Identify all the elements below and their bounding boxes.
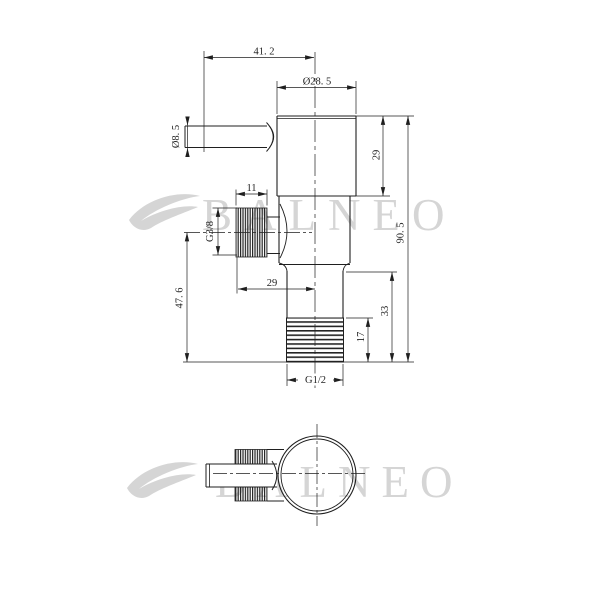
dim-label: Ø8. 5 <box>171 125 182 148</box>
dim-cap-height: 29 <box>356 116 414 196</box>
dim-label: 41. 2 <box>254 47 275 58</box>
dim-label: 47. 6 <box>175 288 186 309</box>
handle-lever <box>185 123 274 152</box>
dim-lower-section-height: 33 <box>346 272 397 362</box>
dim-side-port-offset: 29 <box>237 258 315 294</box>
side-thread-hatch <box>236 208 267 257</box>
bottom-thread-port <box>287 318 344 362</box>
dim-bottom-thread-length: 17 <box>346 318 373 362</box>
dim-label: G3/8 <box>205 221 216 242</box>
dim-label: 11 <box>246 183 256 194</box>
valve-technical-drawing: BALNEO BALNEO <box>0 0 600 600</box>
dim-body-diameter: Ø28. 5 <box>277 77 356 115</box>
balneo-leaf-logo-icon <box>127 462 198 498</box>
dim-side-port-height: 47. 6 <box>175 233 188 363</box>
handle-lever-top-view <box>206 461 277 490</box>
dim-label: Ø28. 5 <box>303 77 332 88</box>
lever-body-mask <box>206 464 277 487</box>
dim-label: 17 <box>356 332 367 343</box>
dim-label: 29 <box>372 150 383 161</box>
bottom-thread-hatch <box>287 318 344 362</box>
dim-label: G1/2 <box>305 375 326 386</box>
dim-label: 29 <box>267 278 278 289</box>
balneo-leaf-logo-icon <box>129 194 200 230</box>
dim-label: 90. 5 <box>396 223 407 244</box>
dim-handle-offset-width: 41. 2 <box>204 47 314 153</box>
watermark-lower: BALNEO <box>127 457 463 507</box>
dim-label: 33 <box>380 306 391 317</box>
dim-overall-height: 90. 5 <box>396 116 409 362</box>
drawing-canvas: BALNEO BALNEO <box>0 0 600 600</box>
